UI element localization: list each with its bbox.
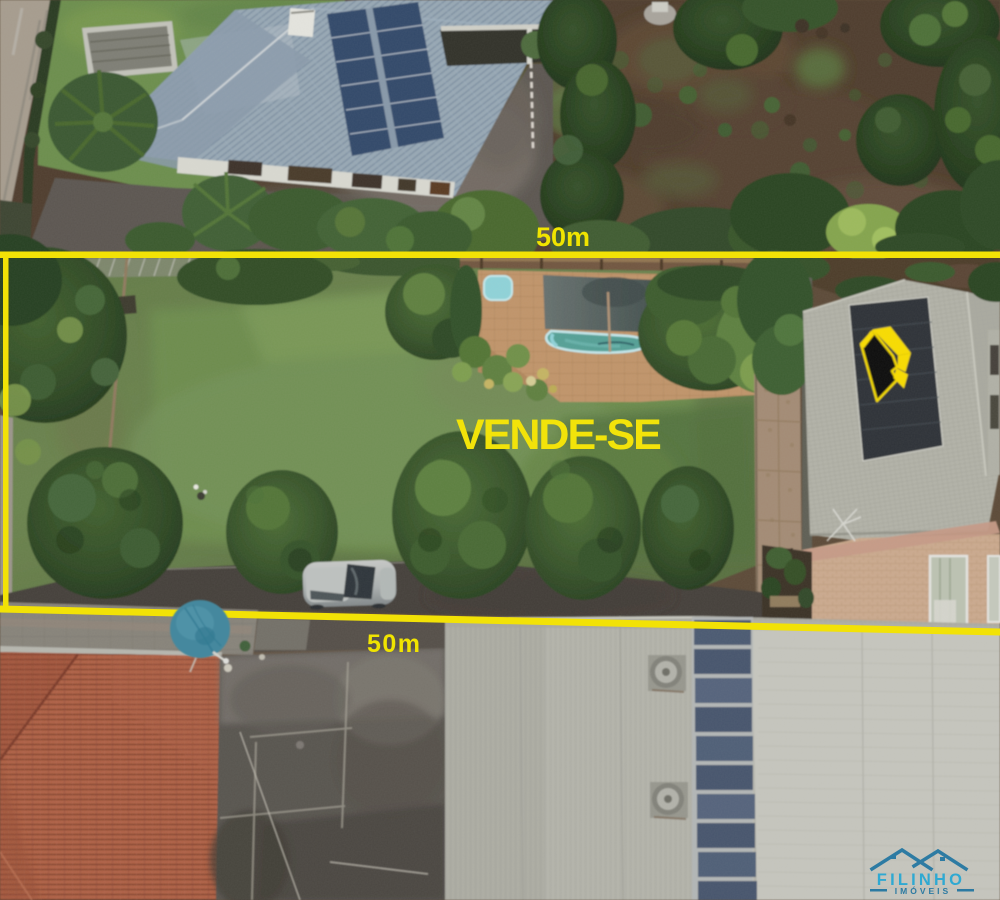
svg-text:50m: 50m [367, 630, 422, 658]
svg-text:50m: 50m [536, 222, 590, 252]
svg-text:IMÓVEIS: IMÓVEIS [895, 885, 951, 896]
svg-text:VENDE-SE: VENDE-SE [456, 411, 660, 459]
